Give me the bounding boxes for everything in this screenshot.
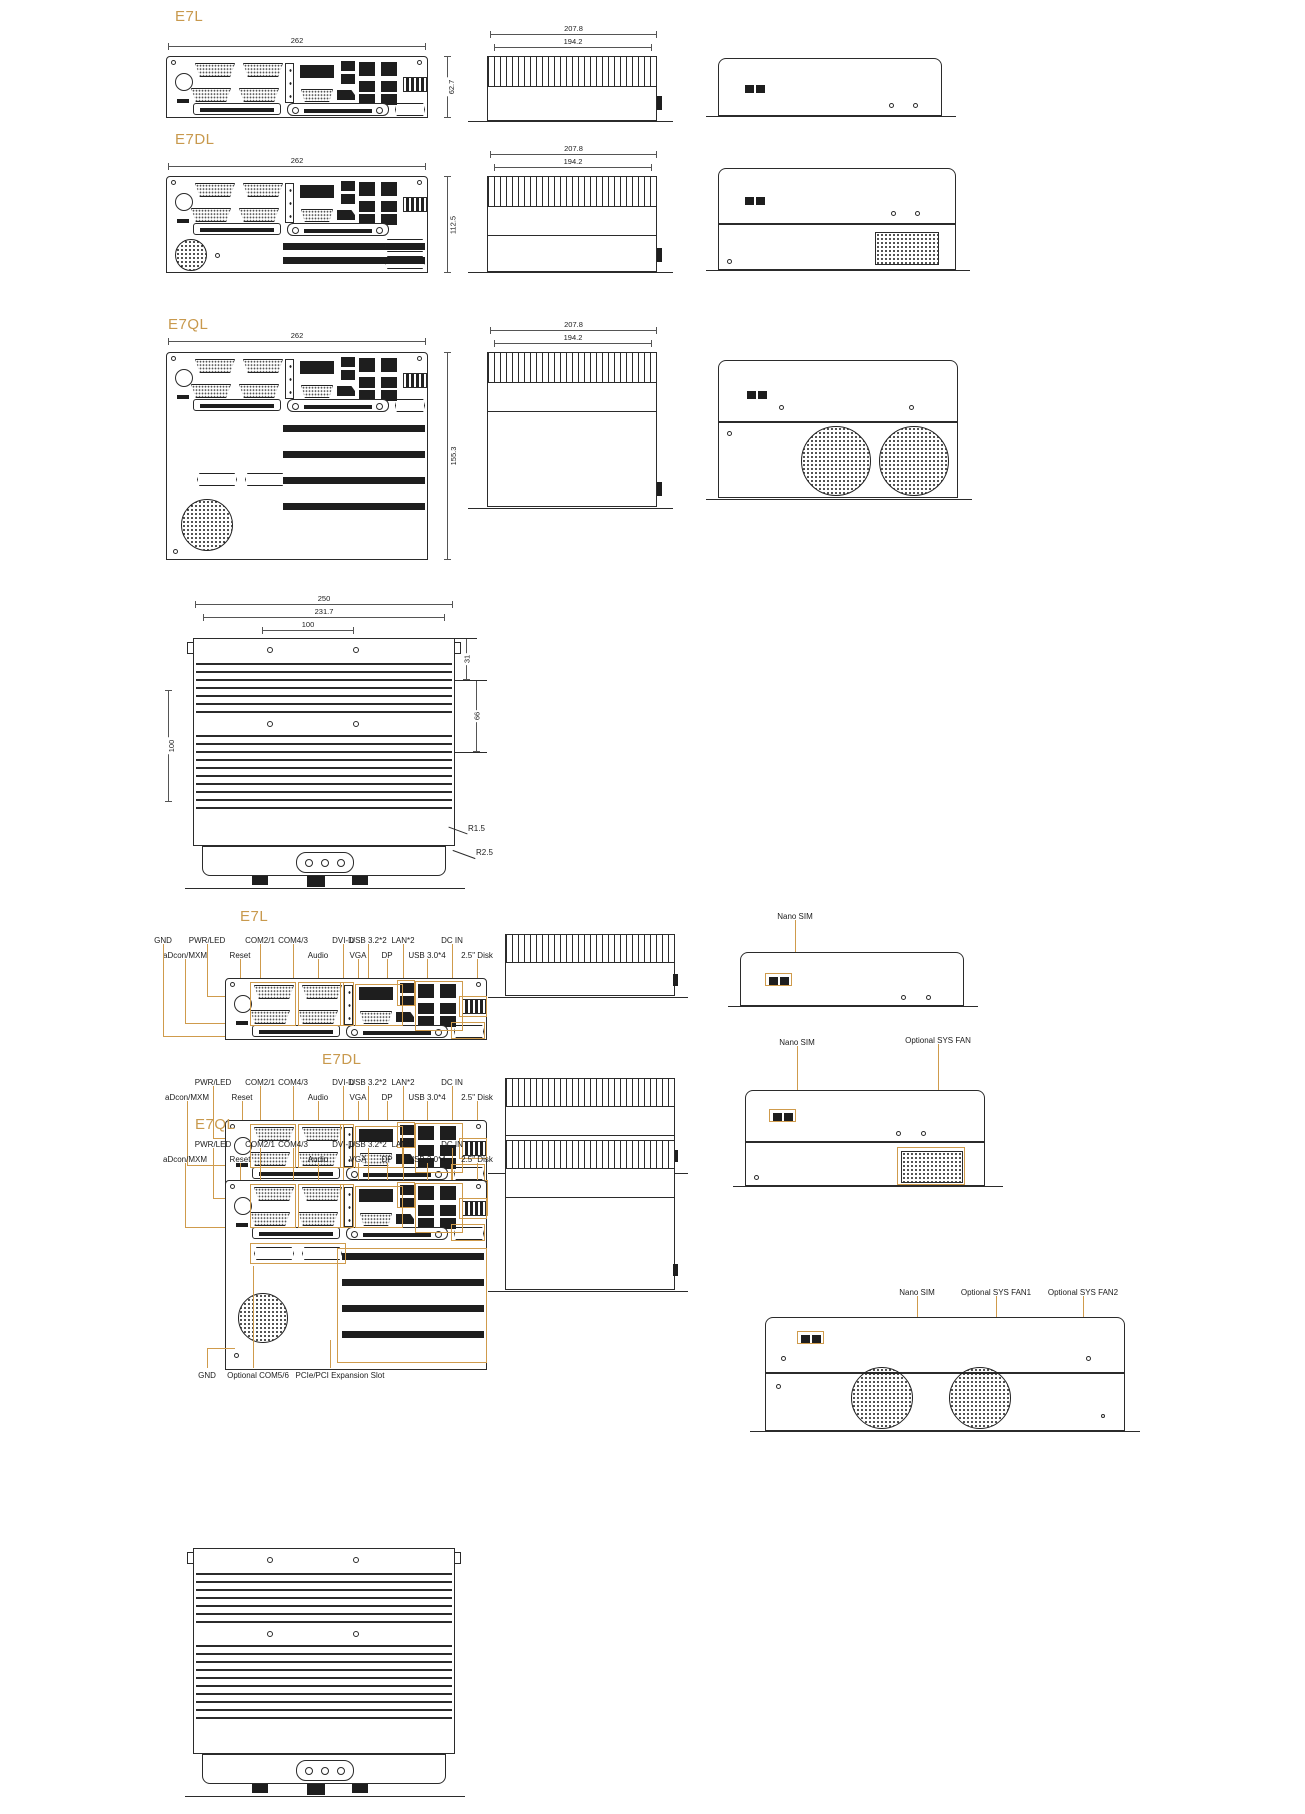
expansion-interface-bar bbox=[193, 103, 281, 115]
highlight-sim bbox=[769, 1109, 796, 1122]
usb-port-icon bbox=[341, 194, 355, 204]
dim-topview-width-inner: 231.7 bbox=[203, 617, 445, 618]
ground-line bbox=[488, 1291, 688, 1292]
usb-port-icon bbox=[359, 81, 375, 92]
ground-line bbox=[468, 121, 673, 122]
vga-port-icon bbox=[301, 89, 333, 102]
bottom-connector-plate bbox=[296, 852, 354, 873]
fin-gap bbox=[196, 1627, 452, 1641]
e7dl-side-view-fins bbox=[487, 176, 657, 206]
fan-grille-icon bbox=[181, 499, 233, 551]
usb-port-icon bbox=[381, 377, 397, 388]
model-title-e7ql-io: E7QL bbox=[195, 1116, 235, 1133]
screw-icon bbox=[292, 403, 299, 410]
expansion-interface-bar bbox=[193, 399, 281, 411]
audio-jacks-icon bbox=[285, 359, 294, 399]
connector-pin-icon bbox=[337, 1767, 345, 1775]
screw-icon bbox=[754, 1175, 759, 1180]
illegible-text-bar bbox=[200, 404, 274, 408]
dim-value: 250 bbox=[316, 594, 333, 603]
fin-gap bbox=[196, 717, 452, 731]
highlight-com bbox=[298, 1184, 344, 1228]
com-port-icon bbox=[195, 63, 235, 77]
body-split-line bbox=[488, 235, 656, 236]
e7ql-front-view-top bbox=[718, 360, 958, 422]
fan-grille-icon bbox=[851, 1367, 913, 1429]
slot-bar bbox=[287, 399, 389, 412]
sim-slot-icon bbox=[756, 197, 765, 205]
usb-port-icon bbox=[341, 370, 355, 380]
leader bbox=[368, 1086, 369, 1122]
screw-icon bbox=[901, 995, 906, 1000]
side-connector bbox=[673, 1264, 678, 1276]
connector-pin-icon bbox=[305, 859, 313, 867]
highlight-dvi-vga bbox=[355, 1186, 403, 1228]
label-expansion-slot: PCIe/PCI Expansion Slot bbox=[296, 1371, 385, 1380]
side-connector bbox=[657, 482, 662, 496]
lan-port-icon bbox=[359, 358, 375, 372]
ground-line bbox=[706, 499, 972, 500]
leader bbox=[185, 1163, 186, 1227]
highlight-sys-fan bbox=[897, 1147, 965, 1185]
slot-opening bbox=[363, 1173, 431, 1177]
dim-topview-width: 250 bbox=[195, 604, 453, 605]
usb-port-icon bbox=[381, 201, 397, 212]
mount-ear bbox=[454, 1552, 461, 1564]
led-icon bbox=[177, 395, 189, 399]
highlight-com bbox=[250, 1184, 296, 1228]
screw-icon bbox=[476, 982, 481, 987]
illegible-text-bar bbox=[259, 1232, 333, 1236]
e7ql-side-view-fins bbox=[505, 1140, 675, 1168]
e7ql-side-view-body bbox=[505, 1168, 675, 1290]
dc-in-terminal-icon bbox=[403, 77, 427, 92]
highlight-dvi-vga bbox=[355, 984, 403, 1026]
side-connector bbox=[657, 248, 662, 262]
screw-icon bbox=[1101, 1414, 1105, 1418]
model-title-e7ql: E7QL bbox=[168, 316, 208, 333]
e7dl-side-view-body bbox=[487, 206, 657, 272]
dim-e7l-width: 262 bbox=[168, 46, 426, 47]
highlight-audio bbox=[340, 982, 354, 1026]
dim-e7l-height: 62.7 bbox=[447, 56, 448, 118]
e7dl-front-view-bottom bbox=[718, 224, 956, 270]
ground-line bbox=[706, 116, 956, 117]
sim-slot-icon bbox=[745, 197, 754, 205]
e7dl-rear-view bbox=[166, 176, 428, 273]
extension-line bbox=[455, 680, 487, 681]
screw-icon bbox=[171, 356, 176, 361]
com-port-icon bbox=[195, 183, 235, 197]
dim-value: 262 bbox=[289, 331, 306, 340]
audio-jacks-icon bbox=[285, 183, 294, 223]
model-title-e7l: E7L bbox=[175, 8, 203, 25]
dim-e7dl-height: 112.5 bbox=[447, 176, 448, 273]
screw-icon bbox=[351, 1029, 358, 1036]
mount-hole-icon bbox=[267, 1557, 273, 1563]
ground-line bbox=[733, 1186, 1003, 1187]
usb-port-icon bbox=[341, 181, 355, 191]
optional-com-tray-icon bbox=[385, 256, 425, 269]
foot bbox=[252, 1784, 268, 1793]
dim-value: 62.7 bbox=[447, 78, 456, 97]
e7ql-rear-view bbox=[166, 352, 428, 560]
sim-slot-icon bbox=[758, 391, 767, 399]
screw-icon bbox=[727, 431, 732, 436]
screw-icon bbox=[230, 1184, 235, 1189]
dim-value: 207.8 bbox=[562, 144, 585, 153]
expansion-slot-opening bbox=[283, 477, 425, 484]
fan-grille-icon bbox=[238, 1293, 288, 1343]
e7ql-front-view-top bbox=[765, 1317, 1125, 1373]
power-button-icon bbox=[175, 193, 193, 211]
top-view-body bbox=[193, 638, 455, 846]
e7l-front-view bbox=[718, 58, 942, 116]
e7l-side-view-fins bbox=[505, 934, 675, 962]
extension-line bbox=[455, 638, 477, 639]
connector-pin-icon bbox=[321, 859, 329, 867]
power-button-icon bbox=[175, 369, 193, 387]
label-com56: Optional COM5/6 bbox=[227, 1371, 289, 1380]
expansion-slot-opening bbox=[283, 425, 425, 432]
usb-port-icon bbox=[341, 61, 355, 71]
ground-line bbox=[750, 1431, 1140, 1432]
radius-note: R1.5 bbox=[468, 824, 485, 833]
leader bbox=[207, 1348, 208, 1368]
screw-icon bbox=[376, 107, 383, 114]
screw-icon bbox=[230, 982, 235, 987]
highlight-dcin bbox=[459, 996, 487, 1017]
extension-line bbox=[455, 752, 487, 753]
dim-e7ql-depth: 207.8 bbox=[490, 330, 657, 331]
screw-icon bbox=[376, 227, 383, 234]
screw-icon bbox=[476, 1184, 481, 1189]
screw-icon bbox=[417, 60, 422, 65]
lan-port-icon bbox=[381, 182, 397, 196]
screw-icon bbox=[1086, 1356, 1091, 1361]
dvi-port-icon bbox=[300, 361, 334, 374]
dim-value: 31 bbox=[463, 653, 472, 665]
slot-opening bbox=[304, 109, 372, 113]
usb-port-icon bbox=[341, 357, 355, 367]
highlight-usb32 bbox=[397, 980, 415, 1006]
dim-value: 155.3 bbox=[449, 445, 458, 468]
ground-line bbox=[488, 997, 688, 998]
leader bbox=[213, 1148, 214, 1198]
com-port-icon bbox=[239, 384, 279, 398]
mount-hole-icon bbox=[353, 1557, 359, 1563]
screw-icon bbox=[476, 1124, 481, 1129]
slot-bar bbox=[287, 223, 389, 236]
dim-topview-right-mid: 66 bbox=[476, 680, 477, 752]
expansion-slot-opening bbox=[283, 503, 425, 510]
screw-icon bbox=[909, 405, 914, 410]
dvi-port-icon bbox=[300, 65, 334, 78]
highlight-disk bbox=[451, 1224, 485, 1241]
screw-icon bbox=[896, 1131, 901, 1136]
screw-icon bbox=[779, 405, 784, 410]
gnd-screw-icon bbox=[234, 1353, 239, 1358]
dim-value: 66 bbox=[473, 710, 482, 722]
dim-value: 262 bbox=[289, 156, 306, 165]
sim-slot-icon bbox=[747, 391, 756, 399]
fan-grille-icon bbox=[175, 239, 207, 271]
dim-value: 207.8 bbox=[562, 24, 585, 33]
audio-jacks-icon bbox=[285, 63, 294, 103]
fan-grille-rect-icon bbox=[875, 232, 939, 265]
dim-e7l-depth-inner: 194.2 bbox=[494, 47, 652, 48]
bottom-view-body bbox=[193, 1548, 455, 1754]
disk-tray-icon bbox=[395, 399, 425, 412]
highlight-expansion-slots bbox=[337, 1248, 487, 1363]
optional-com-tray-icon bbox=[385, 239, 425, 252]
usb-port-icon bbox=[341, 74, 355, 84]
screw-icon bbox=[781, 1356, 786, 1361]
dim-value: 112.5 bbox=[449, 213, 458, 235]
body-split-line bbox=[488, 411, 656, 412]
lan-port-icon bbox=[381, 358, 397, 372]
dp-port-icon bbox=[337, 90, 355, 100]
com-port-icon bbox=[191, 208, 231, 222]
expansion-slot-opening bbox=[283, 451, 425, 458]
leader bbox=[163, 944, 164, 1036]
slot-opening bbox=[363, 1031, 431, 1035]
dim-topview-mount: 100 bbox=[262, 630, 354, 631]
mount-ear bbox=[187, 642, 194, 654]
screw-icon bbox=[915, 211, 920, 216]
screw-icon bbox=[351, 1231, 358, 1238]
slot-opening bbox=[363, 1233, 431, 1237]
leader bbox=[207, 944, 208, 996]
e7dl-front-view-top bbox=[718, 168, 956, 224]
connector-pin-icon bbox=[337, 859, 345, 867]
ground-line bbox=[185, 1796, 465, 1797]
led-icon bbox=[236, 1223, 248, 1227]
highlight-sim bbox=[765, 973, 792, 986]
highlight-com bbox=[250, 982, 296, 1026]
dim-topview-left: 100 bbox=[168, 690, 169, 802]
highlight-com bbox=[298, 982, 344, 1026]
screw-icon bbox=[171, 60, 176, 65]
top-view-bottom-part bbox=[202, 846, 446, 876]
illegible-text-bar bbox=[200, 228, 274, 232]
mount-hole-icon bbox=[267, 721, 273, 727]
leader bbox=[368, 944, 369, 980]
dim-value: 194.2 bbox=[562, 333, 585, 342]
mount-hole-icon bbox=[353, 721, 359, 727]
slot-opening bbox=[304, 229, 372, 233]
mount-hole-icon bbox=[353, 647, 359, 653]
sim-slot-icon bbox=[756, 85, 765, 93]
e7l-side-view-body bbox=[505, 962, 675, 996]
screw-icon bbox=[417, 356, 422, 361]
e7l-side-view-body bbox=[487, 86, 657, 121]
com-port-icon bbox=[239, 208, 279, 222]
bottom-stub bbox=[307, 1784, 325, 1795]
foot bbox=[352, 876, 368, 885]
dim-value: 207.8 bbox=[562, 320, 585, 329]
com-port-icon bbox=[191, 384, 231, 398]
illegible-text-bar bbox=[259, 1172, 333, 1176]
vga-port-icon bbox=[301, 209, 333, 222]
e7ql-side-view-fins bbox=[487, 352, 657, 382]
dp-port-icon bbox=[337, 210, 355, 220]
screw-icon bbox=[727, 259, 732, 264]
ground-line bbox=[706, 270, 970, 271]
lan-port-icon bbox=[381, 62, 397, 76]
highlight-sim bbox=[797, 1331, 824, 1344]
leader-line bbox=[453, 850, 476, 859]
com-port-icon bbox=[243, 183, 283, 197]
dimension-drawing-page: E7L 262 62.7 207.8 194.2 E7DL 262 bbox=[0, 0, 1305, 1814]
usb-port-icon bbox=[359, 201, 375, 212]
e7dl-side-view-fins bbox=[505, 1078, 675, 1106]
screw-icon bbox=[889, 103, 894, 108]
leader bbox=[207, 1348, 235, 1349]
dim-e7ql-height: 155.3 bbox=[447, 352, 448, 560]
dim-e7ql-depth-inner: 194.2 bbox=[494, 343, 652, 344]
e7l-side-view-fins bbox=[487, 56, 657, 86]
screw-icon bbox=[776, 1384, 781, 1389]
led-icon bbox=[177, 99, 189, 103]
screw-icon bbox=[171, 180, 176, 185]
illegible-text-bar bbox=[200, 108, 274, 112]
screw-icon bbox=[173, 549, 178, 554]
dim-value: 194.2 bbox=[562, 37, 585, 46]
slot-opening bbox=[304, 405, 372, 409]
model-title-e7l-io: E7L bbox=[240, 908, 268, 925]
expansion-interface-bar bbox=[252, 1025, 340, 1037]
screw-icon bbox=[926, 995, 931, 1000]
highlight-audio bbox=[340, 1184, 354, 1228]
mount-ear bbox=[454, 642, 461, 654]
leader bbox=[368, 1148, 369, 1184]
disk-tray-icon bbox=[395, 103, 425, 116]
fan-grille-icon bbox=[879, 426, 949, 496]
leader bbox=[253, 1266, 254, 1368]
screw-icon bbox=[417, 180, 422, 185]
vga-port-icon bbox=[301, 385, 333, 398]
dim-e7ql-width: 262 bbox=[168, 341, 426, 342]
expansion-interface-bar bbox=[252, 1227, 340, 1239]
com-port-icon bbox=[243, 359, 283, 373]
mount-hole-icon bbox=[267, 647, 273, 653]
dvi-port-icon bbox=[300, 185, 334, 198]
dc-in-terminal-icon bbox=[403, 197, 427, 212]
e7ql-front-view-bottom bbox=[718, 422, 958, 498]
optional-com-tray-icon bbox=[197, 473, 237, 486]
e7ql-side-view-body bbox=[487, 382, 657, 507]
screw-icon bbox=[913, 103, 918, 108]
com-port-icon bbox=[195, 359, 235, 373]
highlight-com56 bbox=[250, 1243, 346, 1264]
dim-value: 262 bbox=[289, 36, 306, 45]
led-icon bbox=[236, 1021, 248, 1025]
mount-ear bbox=[187, 1552, 194, 1564]
dim-value: 100 bbox=[300, 620, 317, 629]
connector-pin-icon bbox=[305, 1767, 313, 1775]
model-title-e7dl-io: E7DL bbox=[322, 1051, 362, 1068]
illegible-text-bar bbox=[259, 1030, 333, 1034]
heatsink-fins bbox=[196, 663, 452, 811]
dim-value: 231.7 bbox=[313, 607, 336, 616]
bottom-view-bottom-part bbox=[202, 1754, 446, 1784]
dim-value: 100 bbox=[167, 738, 176, 755]
heatsink-fins bbox=[196, 1573, 452, 1721]
dp-port-icon bbox=[337, 386, 355, 396]
side-connector bbox=[657, 96, 662, 110]
usb-port-icon bbox=[359, 377, 375, 388]
connector-pin-icon bbox=[321, 1767, 329, 1775]
highlight-usb32 bbox=[397, 1182, 415, 1208]
body-split-line bbox=[506, 1197, 674, 1198]
dim-topview-right-top: 31 bbox=[466, 638, 467, 680]
screw-icon bbox=[921, 1131, 926, 1136]
dim-value: 194.2 bbox=[562, 157, 585, 166]
foot bbox=[352, 1784, 368, 1793]
model-title-e7dl: E7DL bbox=[175, 131, 215, 148]
expansion-interface-bar bbox=[252, 1167, 340, 1179]
body-split-line bbox=[506, 1135, 674, 1136]
power-button-icon bbox=[175, 73, 193, 91]
screw-icon bbox=[376, 403, 383, 410]
highlight-dcin bbox=[459, 1198, 487, 1219]
ground-line bbox=[468, 272, 673, 273]
dim-e7dl-width: 262 bbox=[168, 166, 426, 167]
usb-port-icon bbox=[381, 81, 397, 92]
dim-e7l-depth: 207.8 bbox=[490, 34, 657, 35]
mount-hole-icon bbox=[353, 1631, 359, 1637]
led-icon bbox=[177, 219, 189, 223]
e7ql-front-view-bottom bbox=[765, 1373, 1125, 1431]
dim-e7dl-depth-inner: 194.2 bbox=[494, 167, 652, 168]
dim-e7dl-depth: 207.8 bbox=[490, 154, 657, 155]
highlight-disk bbox=[451, 1022, 485, 1039]
bottom-connector-plate bbox=[296, 1760, 354, 1781]
optional-com-tray-icon bbox=[245, 473, 285, 486]
screw-icon bbox=[292, 107, 299, 114]
radius-note: R2.5 bbox=[476, 848, 493, 857]
com-port-icon bbox=[239, 88, 279, 102]
leader bbox=[403, 1086, 404, 1124]
screw-icon bbox=[215, 253, 220, 258]
lan-port-icon bbox=[359, 182, 375, 196]
fan-grille-icon bbox=[801, 426, 871, 496]
label-gnd: GND bbox=[198, 1371, 216, 1380]
slot-bar bbox=[287, 103, 389, 116]
expansion-interface-bar bbox=[193, 223, 281, 235]
ground-line bbox=[185, 888, 465, 889]
dc-in-terminal-icon bbox=[403, 373, 427, 388]
lan-port-icon bbox=[359, 62, 375, 76]
ground-line bbox=[468, 508, 673, 509]
mount-hole-icon bbox=[267, 1631, 273, 1637]
e7l-rear-view bbox=[166, 56, 428, 118]
side-connector bbox=[673, 974, 678, 986]
fan-grille-icon bbox=[949, 1367, 1011, 1429]
screw-icon bbox=[292, 227, 299, 234]
sim-slot-icon bbox=[745, 85, 754, 93]
leader bbox=[403, 944, 404, 982]
bottom-stub bbox=[307, 876, 325, 887]
screw-icon bbox=[891, 211, 896, 216]
foot bbox=[252, 876, 268, 885]
ground-line bbox=[728, 1006, 978, 1007]
highlight-disk bbox=[451, 1164, 485, 1181]
screw-icon bbox=[351, 1171, 358, 1178]
com-port-icon bbox=[191, 88, 231, 102]
com-port-icon bbox=[243, 63, 283, 77]
